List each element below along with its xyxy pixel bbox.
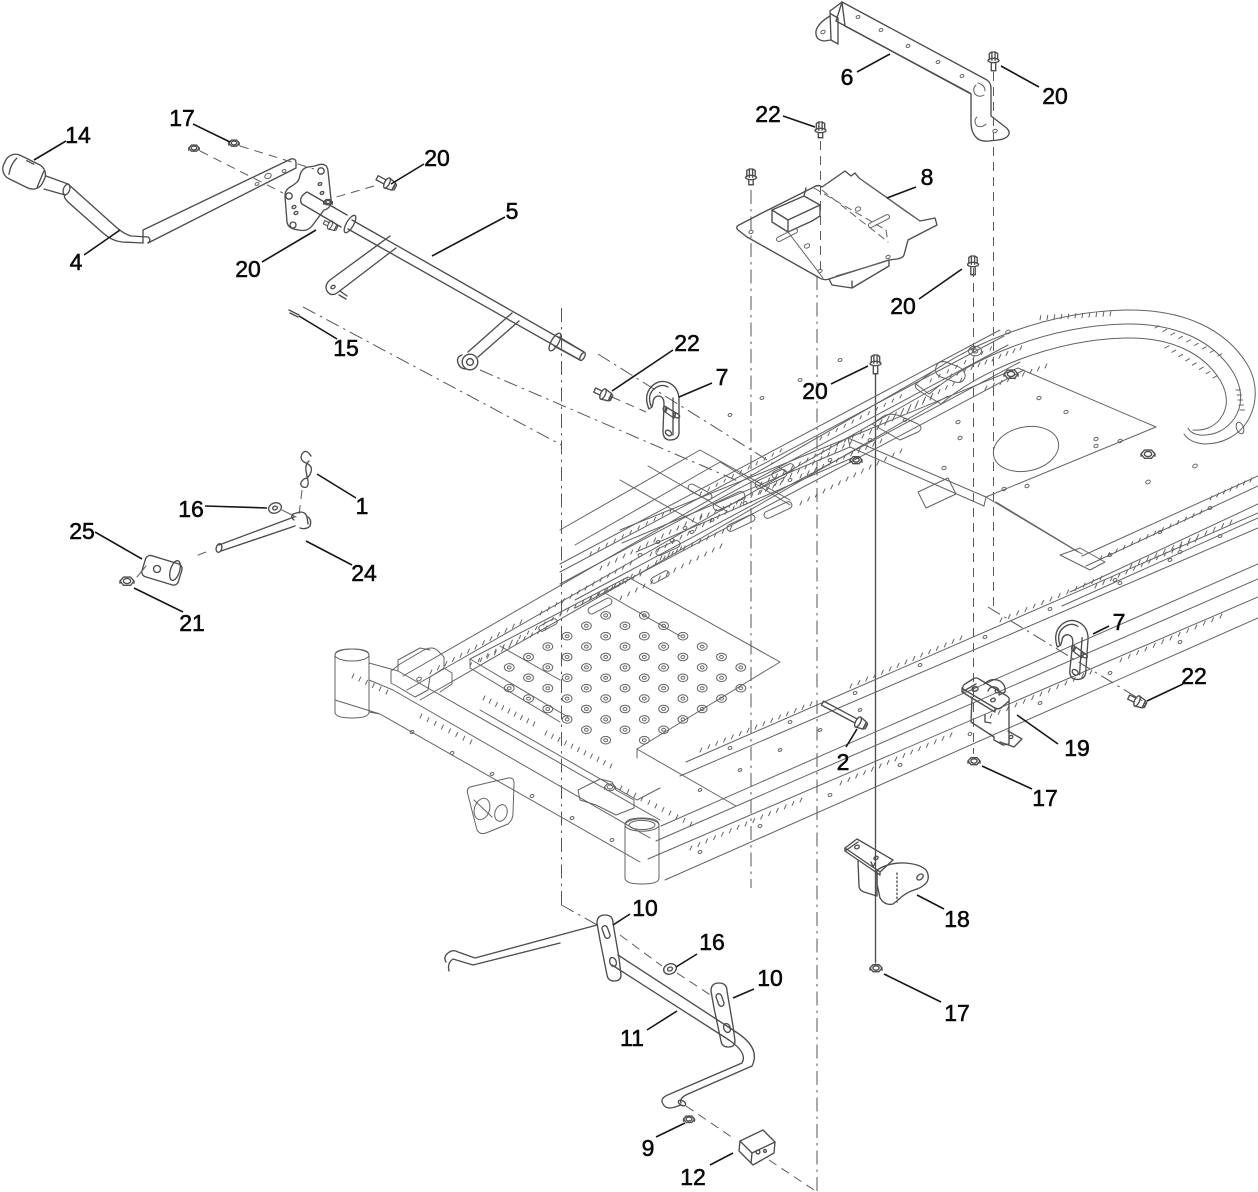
svg-text:10: 10 (757, 965, 783, 991)
svg-text:5: 5 (506, 198, 519, 224)
svg-text:22: 22 (674, 330, 700, 356)
svg-text:7: 7 (1113, 609, 1126, 635)
svg-text:22: 22 (1181, 663, 1207, 689)
svg-text:20: 20 (424, 145, 450, 171)
svg-text:20: 20 (802, 378, 828, 404)
svg-text:12: 12 (680, 1164, 706, 1190)
svg-text:14: 14 (65, 122, 91, 148)
svg-text:20: 20 (235, 256, 261, 282)
svg-text:6: 6 (841, 64, 854, 90)
svg-text:15: 15 (333, 335, 359, 361)
svg-text:16: 16 (699, 929, 725, 955)
svg-text:1: 1 (356, 493, 369, 519)
svg-text:20: 20 (1042, 83, 1068, 109)
svg-text:4: 4 (70, 249, 83, 275)
svg-text:22: 22 (755, 101, 781, 127)
svg-text:17: 17 (169, 105, 195, 131)
svg-text:8: 8 (921, 164, 934, 190)
svg-text:9: 9 (642, 1135, 655, 1161)
svg-text:11: 11 (620, 1025, 644, 1051)
svg-text:2: 2 (837, 749, 850, 775)
svg-text:20: 20 (890, 293, 916, 319)
svg-text:16: 16 (178, 496, 204, 522)
svg-text:10: 10 (632, 895, 658, 921)
svg-text:17: 17 (944, 1000, 970, 1026)
svg-text:7: 7 (716, 364, 729, 390)
svg-text:24: 24 (351, 560, 377, 586)
svg-text:25: 25 (69, 518, 95, 544)
svg-text:17: 17 (1032, 785, 1058, 811)
svg-text:19: 19 (1064, 735, 1090, 761)
svg-text:18: 18 (944, 906, 970, 932)
svg-text:21: 21 (179, 610, 205, 636)
